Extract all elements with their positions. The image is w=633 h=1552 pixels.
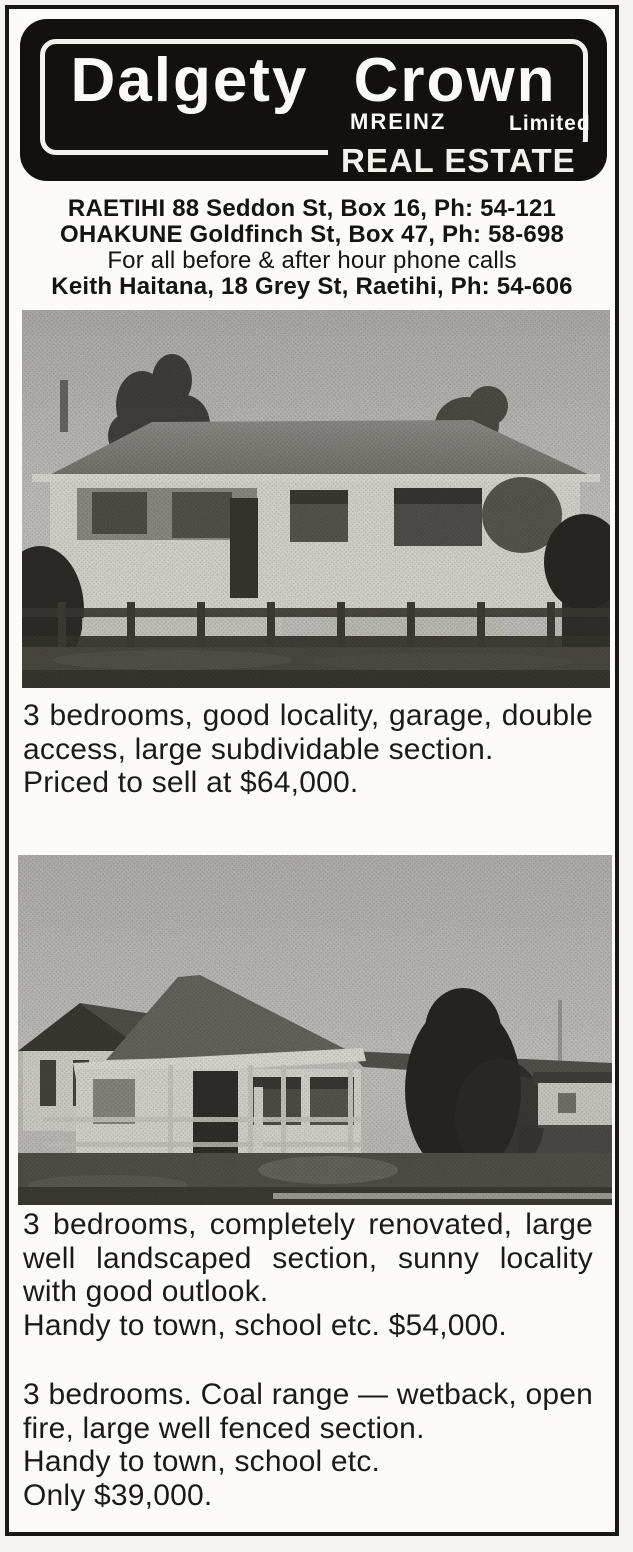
brand-name: Dalgety Crown bbox=[20, 50, 607, 112]
listing-3-text: 3 bedrooms. Coal range — wetback, open f… bbox=[23, 1378, 593, 1512]
house-photo-1-illustration bbox=[22, 310, 610, 688]
listing-3-price: Only $39,000. bbox=[23, 1479, 593, 1513]
brand-tagline: REAL ESTATE bbox=[328, 142, 589, 179]
brand-limited-label: Limited bbox=[509, 113, 591, 134]
listing-3-handy-line: Handy to town, school etc. bbox=[23, 1445, 593, 1479]
listing-1-text: 3 bedrooms, good locality, garage, doubl… bbox=[23, 699, 593, 800]
contact-line-agent: Keith Haitana, 18 Grey St, Raetihi, Ph: … bbox=[9, 274, 615, 300]
house-photo-2-illustration bbox=[18, 855, 612, 1205]
listing-3-description: 3 bedrooms. Coal range — wetback, open f… bbox=[23, 1378, 593, 1445]
listing-2-description: 3 bedrooms, completely renovated, large … bbox=[23, 1208, 593, 1309]
brand-logo-plate: Dalgety Crown MREINZ Limited REAL ESTATE bbox=[20, 19, 607, 181]
contact-line-ohakune: OHAKUNE Goldfinch St, Box 47, Ph: 58-698 bbox=[9, 222, 615, 248]
contact-block: RAETIHI 88 Seddon St, Box 16, Ph: 54-121… bbox=[9, 196, 615, 300]
ad-border-frame: Dalgety Crown MREINZ Limited REAL ESTATE… bbox=[5, 5, 619, 1536]
listing-2-price: Handy to town, school etc. $54,000. bbox=[23, 1309, 593, 1343]
contact-line-raetihi: RAETIHI 88 Seddon St, Box 16, Ph: 54-121 bbox=[9, 196, 615, 222]
contact-line-after-hours: For all before & after hour phone calls bbox=[9, 248, 615, 274]
listing-2-photo bbox=[18, 855, 612, 1205]
listing-2-text: 3 bedrooms, completely renovated, large … bbox=[23, 1208, 593, 1342]
brand-mreinz-label: MREINZ bbox=[350, 111, 446, 133]
listing-1-price: Priced to sell at $64,000. bbox=[23, 766, 593, 800]
listing-1-description: 3 bedrooms, good locality, garage, doubl… bbox=[23, 699, 593, 766]
listing-1-photo bbox=[22, 310, 610, 688]
